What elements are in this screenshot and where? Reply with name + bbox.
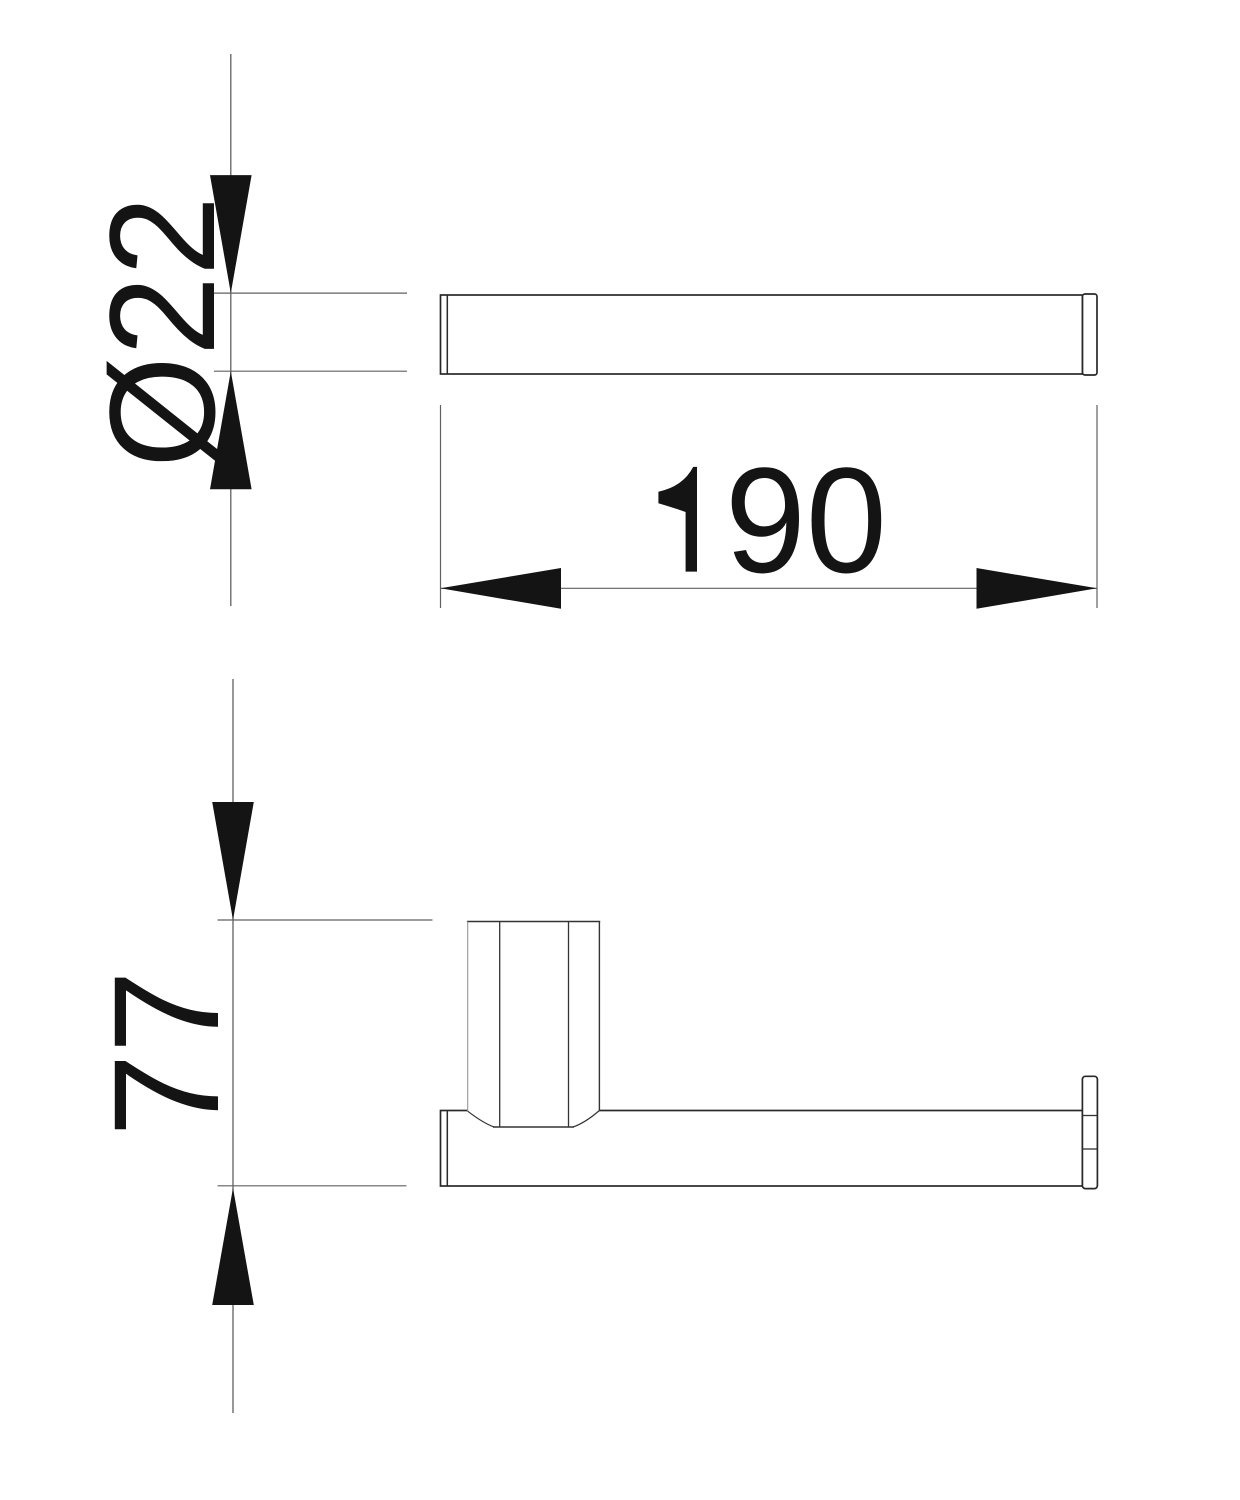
svg-text:Ø22: Ø22 bbox=[78, 196, 246, 468]
svg-text:77: 77 bbox=[82, 970, 250, 1137]
svg-text:90: 90 bbox=[725, 436, 887, 604]
